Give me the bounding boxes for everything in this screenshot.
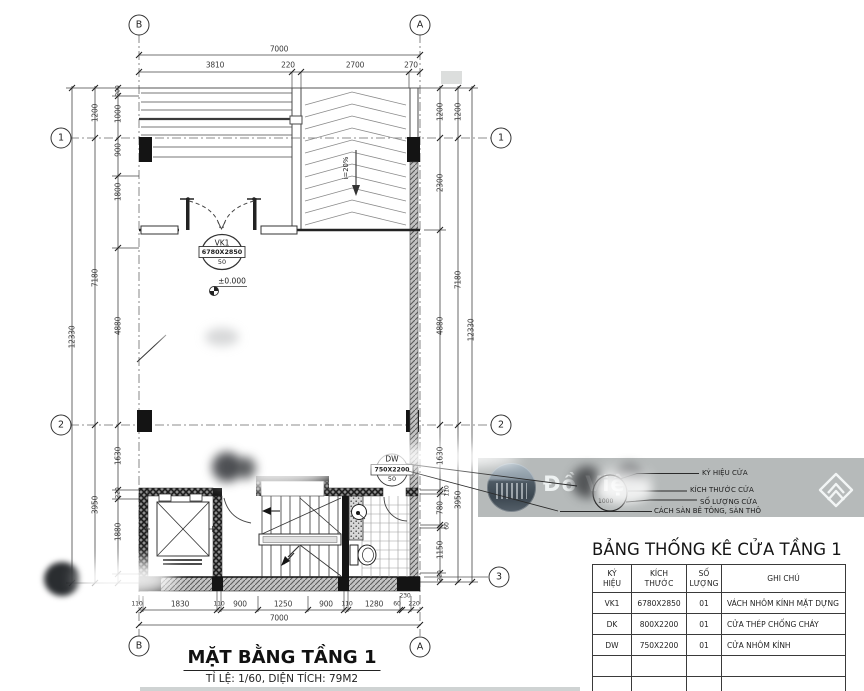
grid-bubble-3-right: 3 xyxy=(489,567,510,588)
dim-label: 3950 xyxy=(454,491,463,509)
ramp-divider xyxy=(290,88,418,231)
cell xyxy=(632,677,687,691)
table-row: DK 800X2200 01 CỬA THÉP CHỐNG CHÁY xyxy=(593,614,846,635)
cell xyxy=(632,656,687,677)
vk1-code: VK1 xyxy=(215,239,230,248)
cell xyxy=(687,656,722,677)
grid-bubble-B-top: B xyxy=(129,15,150,36)
cell: VÁCH NHÔM KÍNH MẶT DỰNG xyxy=(722,593,846,614)
legend-label-symbol: KÝ HIỆU CỬA xyxy=(702,469,748,477)
dim-label: 2300 xyxy=(436,174,445,192)
vk1-size: 6780X2850 xyxy=(202,248,243,256)
dw-height: 50 xyxy=(388,475,396,483)
floorplan-sheet: Đồ Việ xyxy=(0,0,864,691)
door-table-title: BẢNG THỐNG KÊ CỬA TẦNG 1 xyxy=(592,540,842,559)
dw-size: 750X2200 xyxy=(375,467,410,474)
columns xyxy=(137,137,420,432)
table-row xyxy=(593,656,846,677)
cell: 6780X2850 xyxy=(632,593,687,614)
top-dim-lines xyxy=(139,55,420,108)
col-header-symbol: KÝHIỆU xyxy=(593,565,632,593)
cut-leader xyxy=(137,335,166,362)
dim-label: 220 xyxy=(281,61,295,70)
cell xyxy=(687,677,722,691)
table-header-row: KÝHIỆU KÍCHTHƯỚC SỐLƯỢNG GHI CHÚ xyxy=(593,565,846,593)
top-dim-ticks xyxy=(136,52,423,75)
cell: 01 xyxy=(687,614,722,635)
slope-arrow xyxy=(352,150,360,196)
dim-label: 4880 xyxy=(436,317,445,335)
dim-label: 1200 xyxy=(454,103,463,121)
level-marker xyxy=(210,287,248,296)
dim-label: 900 xyxy=(319,600,333,609)
cell: 800X2200 xyxy=(632,614,687,635)
level-label: ±0.000 xyxy=(218,277,246,286)
dim-label: 230 xyxy=(399,593,410,600)
dim-label: 7180 xyxy=(91,269,100,287)
dim-label: 200 xyxy=(115,85,122,96)
dw-door-swing xyxy=(384,497,407,521)
legend-sample-tag xyxy=(593,475,627,511)
dim-right-outer: 12330 xyxy=(467,319,476,342)
legend-sample-value: 1000 xyxy=(598,498,613,505)
dim-left-outer: 12330 xyxy=(68,326,77,349)
cell: 750X2200 xyxy=(632,635,687,656)
drawing-title: MẶT BẰNG TẦNG 1 xyxy=(184,647,381,671)
dim-label: 3950 xyxy=(91,496,100,514)
dim-label: 1280 xyxy=(365,600,383,609)
dim-label: 1880 xyxy=(114,523,123,541)
dim-label: 110 xyxy=(341,601,352,608)
wc-toilet-tank xyxy=(350,545,358,565)
grid-bubble-B-bottom: B xyxy=(129,636,150,657)
dim-label: 1630 xyxy=(436,447,445,465)
staircase xyxy=(224,496,341,577)
dim-label: 2700 xyxy=(346,61,364,70)
grid-bubble-2-right: 2 xyxy=(491,415,512,436)
elevator xyxy=(143,494,216,564)
table-row xyxy=(593,677,846,691)
dim-label: 60 xyxy=(393,601,400,608)
dw-code: DW xyxy=(385,455,398,464)
cell xyxy=(722,656,846,677)
table-row: VK1 6780X2850 01 VÁCH NHÔM KÍNH MẶT DỰNG xyxy=(593,593,846,614)
wc-partition-wall xyxy=(342,496,349,577)
cell xyxy=(722,677,846,691)
cell: CỬA NHÔM KÍNH xyxy=(722,635,846,656)
dim-label: 3810 xyxy=(206,61,224,70)
wc-room xyxy=(349,496,410,577)
right-wall xyxy=(410,162,418,577)
grid-bubble-A-top: A xyxy=(410,15,431,36)
dim-top-total: 7000 xyxy=(270,45,288,54)
dim-label: 110 xyxy=(444,485,451,496)
dim-bottom-total: 7000 xyxy=(270,614,288,623)
cell: DW xyxy=(593,635,632,656)
dim-label: 110 xyxy=(131,601,142,608)
table-row: DW 750X2200 01 CỬA NHÔM KÍNH xyxy=(593,635,846,656)
dim-label: 1200 xyxy=(91,104,100,122)
dim-label: 110 xyxy=(213,601,224,608)
cell: 01 xyxy=(687,593,722,614)
vk1-height: 50 xyxy=(218,258,226,266)
dim-label: 900 xyxy=(233,600,247,609)
dim-label: 4880 xyxy=(114,317,123,335)
dim-label: 900 xyxy=(114,143,123,157)
legend-label-floor: CÁCH SÀN BÊ TÔNG, SÀN THÔ xyxy=(654,507,761,515)
dim-label: 220 xyxy=(408,601,419,608)
dim-label: 1150 xyxy=(436,541,445,559)
col-header-qty: SỐLƯỢNG xyxy=(687,565,722,593)
legend-leaders xyxy=(407,464,699,512)
dim-label: 220 xyxy=(437,570,444,581)
page-edge-strip xyxy=(140,687,580,691)
dim-label: 1630 xyxy=(114,447,123,465)
legend-label-size: KÍCH THƯỚC CỬA xyxy=(690,486,754,494)
drawing-subtitle: TỈ LỆ: 1/60, DIỆN TÍCH: 79M2 xyxy=(206,673,358,685)
slope-label: i=20% xyxy=(342,157,350,180)
grid-bubble-A-bottom: A xyxy=(410,637,431,658)
cell xyxy=(593,677,632,691)
dim-label: 1830 xyxy=(171,600,189,609)
vk1-storefront xyxy=(139,197,420,235)
dim-label: 60 xyxy=(444,522,451,529)
cell xyxy=(593,656,632,677)
col-header-note: GHI CHÚ xyxy=(722,565,846,593)
dim-label: 1000 xyxy=(114,105,123,123)
dim-label: 780 xyxy=(436,501,445,515)
dim-label: 7180 xyxy=(454,271,463,289)
grid-bubble-2-left: 2 xyxy=(51,415,72,436)
left-dim-lines xyxy=(66,86,146,583)
cell: 01 xyxy=(687,635,722,656)
dim-label: 1250 xyxy=(274,600,292,609)
dim-label: 1800 xyxy=(114,183,123,201)
col-header-size: KÍCHTHƯỚC xyxy=(632,565,687,593)
cell: DK xyxy=(593,614,632,635)
grid-bubble-1-right: 1 xyxy=(491,128,512,149)
dim-label: 1200 xyxy=(436,103,445,121)
door-schedule-table: KÝHIỆU KÍCHTHƯỚC SỐLƯỢNG GHI CHÚ VK1 678… xyxy=(592,564,846,691)
entry-steps xyxy=(139,93,292,157)
dim-label: 270 xyxy=(404,61,418,70)
dim-label: 220 xyxy=(115,487,122,498)
cell: CỬA THÉP CHỐNG CHÁY xyxy=(722,614,846,635)
legend-label-qty: SỐ LƯỢNG CỬA xyxy=(700,498,757,506)
cell: VK1 xyxy=(593,593,632,614)
grid-bubble-1-left: 1 xyxy=(51,128,72,149)
